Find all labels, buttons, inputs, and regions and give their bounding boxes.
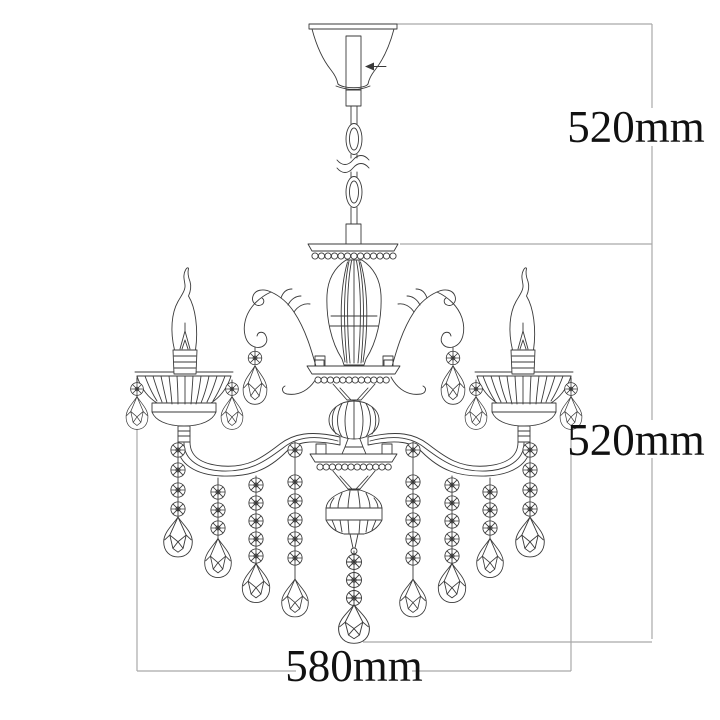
left-candle [172, 268, 197, 374]
left-arm-assembly [126, 372, 340, 617]
chandelier-dimension-diagram: 520mm 520mm 580mm [0, 0, 720, 720]
dimension-label-width: 580mm [285, 641, 423, 691]
suspension-chain [337, 90, 369, 244]
bead-row-middle [315, 377, 389, 383]
right-candle [510, 268, 535, 374]
teardrop-crystal [339, 605, 370, 644]
right-arm-assembly [368, 372, 582, 617]
left-scroll-ornament [243, 289, 324, 404]
center-crystal-string [339, 551, 370, 643]
chain-break-symbol [337, 156, 369, 173]
chandelier-drawing [126, 24, 582, 643]
ceiling-canopy [309, 24, 397, 90]
finial [350, 534, 358, 548]
threaded-rod [346, 36, 361, 90]
bead-row-base [317, 464, 391, 470]
bottom-dome [326, 490, 382, 534]
dimension-label-hanging-height: 520mm [567, 102, 705, 152]
ribbed-sphere [329, 401, 379, 439]
dimension-label-fixture-height: 520mm [567, 415, 705, 465]
bead-row-top [312, 253, 396, 259]
center-column [307, 244, 400, 554]
fluted-urn [327, 260, 381, 365]
right-scroll-ornament [384, 289, 465, 404]
